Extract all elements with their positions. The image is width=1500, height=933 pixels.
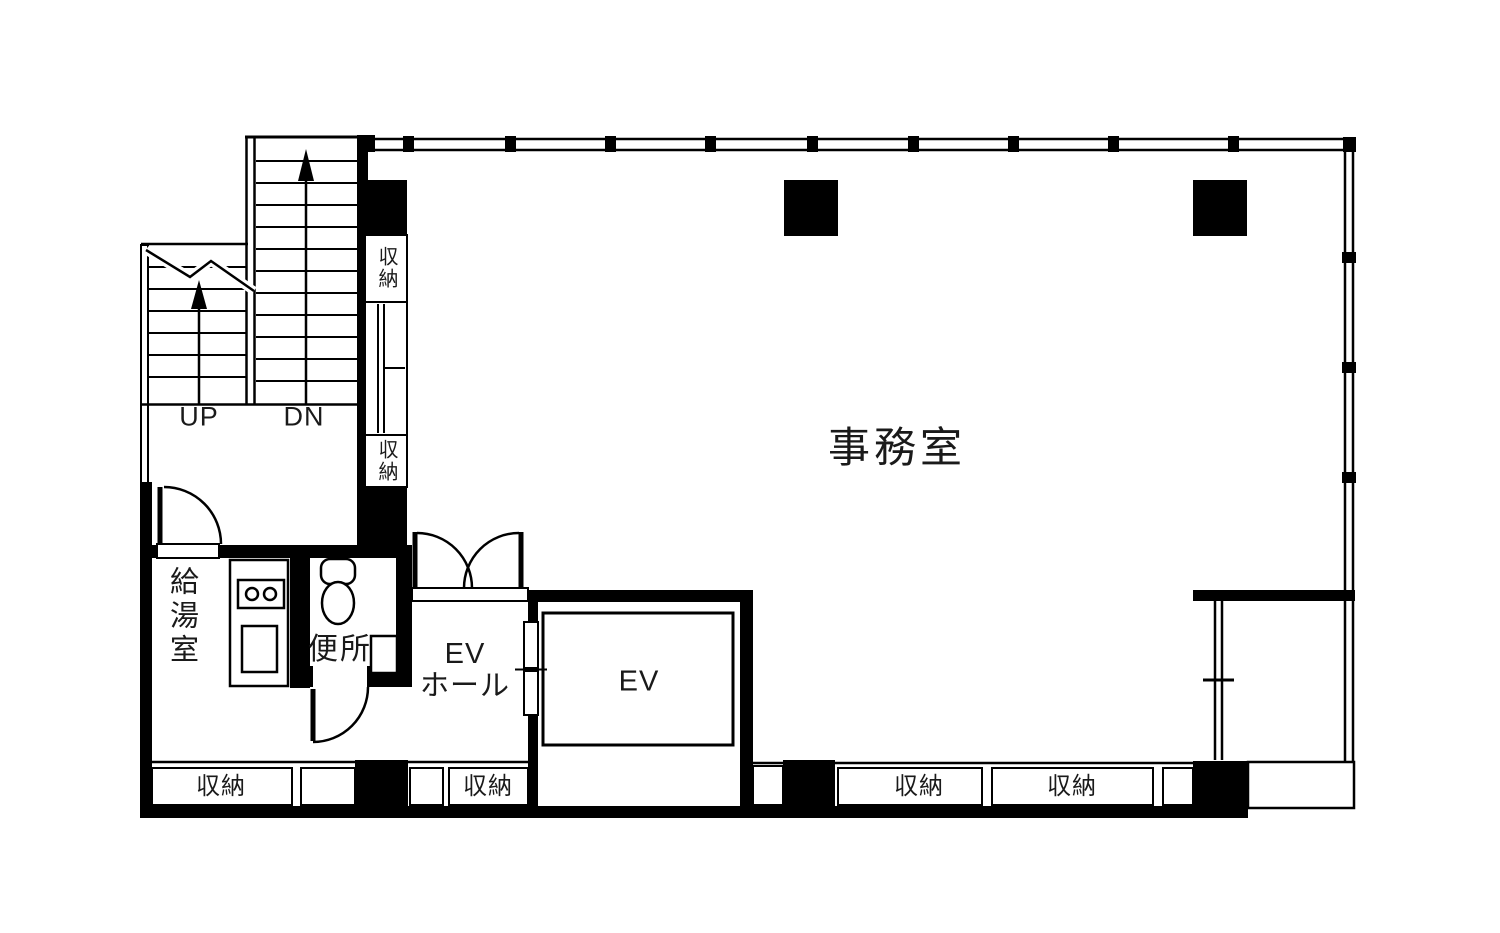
hand-basin-icon [371,636,397,673]
stairs-up-label: UP [179,404,219,431]
kitchen-counter [230,560,288,686]
toilet-door-swing-arc [313,687,368,742]
elevator-shaft [515,590,753,818]
pillar-bottom-left [355,760,408,810]
storage-label-bottom-left: 収納 [196,775,246,799]
landing-door [157,487,221,558]
pillar-office-left [784,180,838,236]
storage-box [410,768,443,805]
sink-icon [242,626,277,672]
toilet-room-label: 便所 [308,635,372,665]
storage-row-bottom [150,762,1193,805]
window-wall-right [1342,138,1356,807]
pillar-bottom-right [1193,761,1248,810]
stairs-down-label: DN [284,404,325,431]
closet-label-stair-lower: 収納 [376,439,396,483]
toilet-fixture-icon [321,559,355,624]
double-door [412,532,528,601]
storage-box [753,766,783,805]
storage-label-bottom-right-1: 収納 [894,775,944,799]
staircase [141,136,357,483]
closet-label-stair-upper: 収納 [376,246,396,290]
stair-down-arrow-icon [298,149,314,404]
office-room-label: 事務室 [828,427,966,469]
pillar-office-right [1193,180,1247,236]
floorplan: 事務室 UP DN 収納 収納 給湯室 便所 EV ホール EV 収納 収納 収… [0,0,1500,933]
elevator-label: EV [619,668,660,697]
stair-flight-divider [247,136,255,405]
stair-treads-up-flight [148,267,246,377]
storage-box [301,768,355,805]
door-threshold [157,544,219,558]
kitchenette-room-label: 給湯室 [167,566,196,668]
storage-label-ev-hall: 収納 [463,775,513,799]
window-wall-top [368,136,1355,152]
balcony-top-wall [1193,590,1355,601]
storage-label-bottom-right-2: 収納 [1047,775,1097,799]
elevator-hall-label: EV ホール [420,639,510,703]
toilet-door-opening [313,666,367,687]
pillar-bottom-mid [783,760,835,810]
storage-box [1163,768,1193,805]
stove-icon [238,580,284,608]
balcony-floor-strip [1248,762,1354,808]
double-door-threshold [412,588,528,601]
door-swing-arc [164,487,221,544]
structural-pillars [355,180,1248,810]
bottom-exterior-wall [140,806,1248,818]
stair-up-arrow-icon [191,280,207,404]
stair-left-thin-wall [141,245,148,483]
